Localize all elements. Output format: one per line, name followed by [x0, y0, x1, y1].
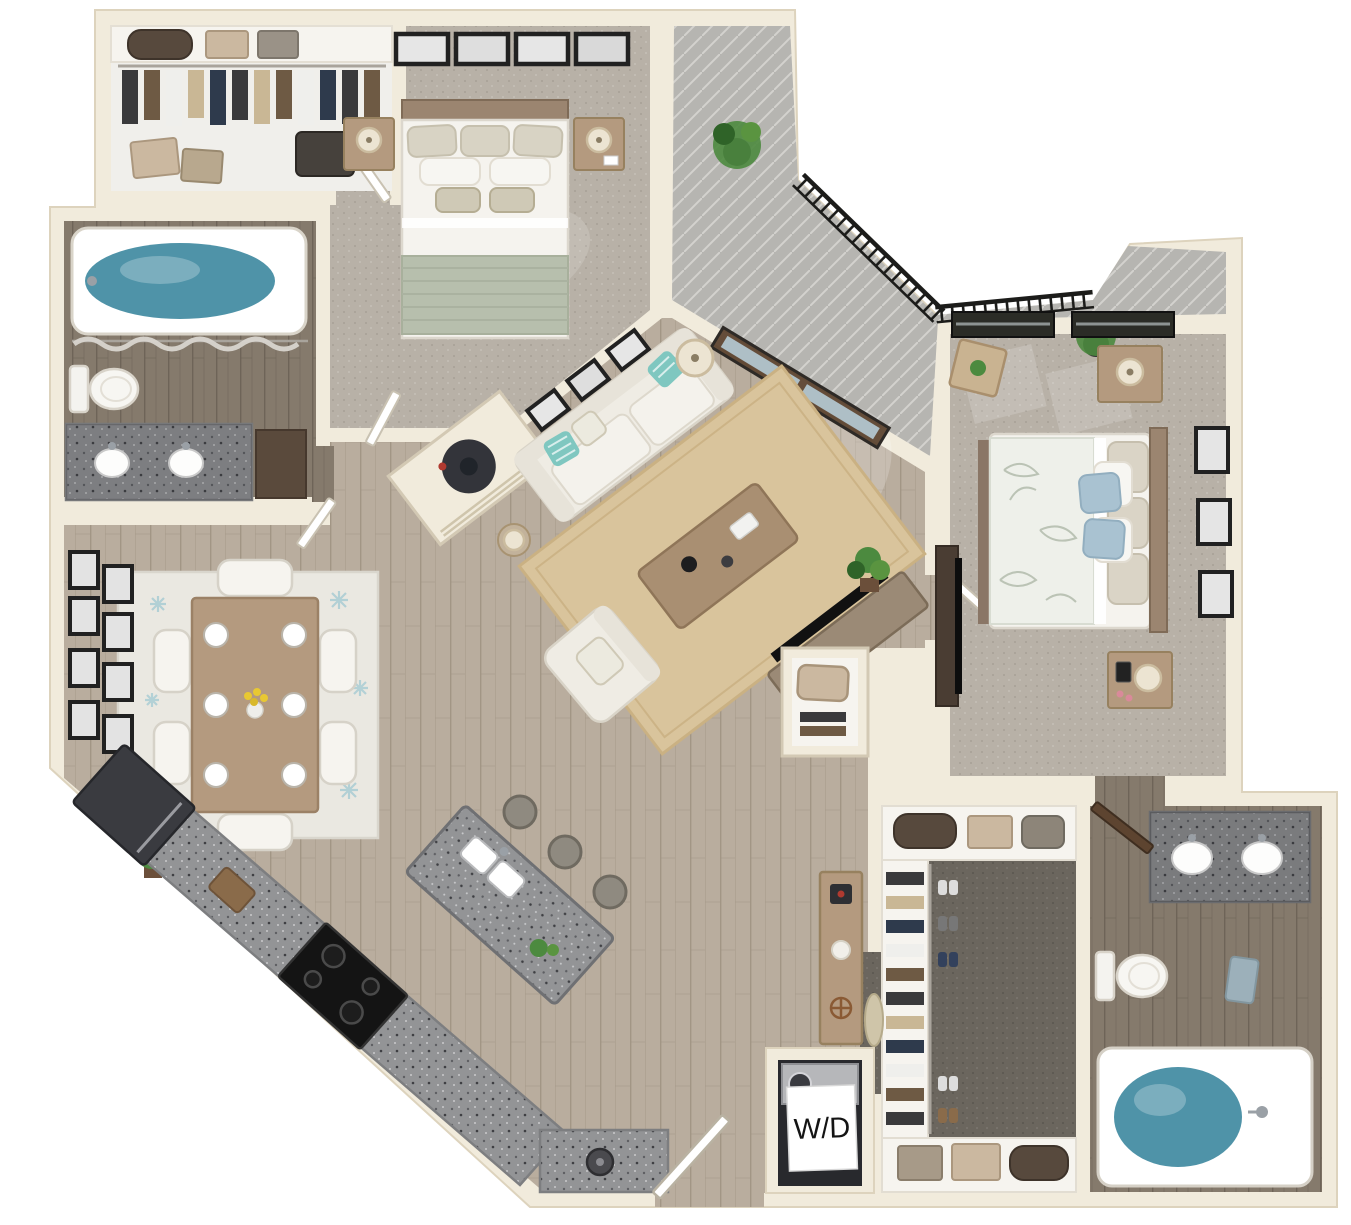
- bathroom-2-threshold: [1095, 776, 1165, 810]
- door-mat: [865, 994, 883, 1046]
- dining-chair: [320, 630, 356, 692]
- bathtub: [1098, 1048, 1312, 1186]
- gallery-frames-bedroom-2: [1196, 428, 1232, 616]
- potted-plant-balcony-nook: [713, 121, 761, 169]
- storage-box: [181, 149, 223, 184]
- storage-box: [258, 31, 298, 58]
- decor-sphere: [832, 941, 850, 959]
- floor-plan: W/D: [0, 0, 1351, 1225]
- vanity-sink: [1172, 842, 1212, 874]
- towel: [1225, 956, 1259, 1003]
- toilet: [1096, 952, 1167, 1000]
- bathtub-water-highlight: [120, 256, 200, 284]
- tablet: [1116, 662, 1131, 682]
- bed-1-sheet-fold: [402, 218, 568, 228]
- sink-faucet: [182, 442, 190, 450]
- picture-frame: [70, 552, 98, 588]
- bar-stool: [594, 876, 626, 908]
- duffel-bag: [1010, 1146, 1068, 1180]
- bed-2-footboard: [978, 440, 990, 624]
- tv: [955, 558, 962, 694]
- toilet: [70, 366, 138, 412]
- storage-box: [952, 1144, 1000, 1180]
- picture-frame: [516, 34, 568, 64]
- bed-1-blanket: [402, 256, 568, 334]
- picture-frame: [1198, 500, 1230, 544]
- wd-label: W/D: [793, 1112, 850, 1146]
- picture-frame: [70, 650, 98, 686]
- bistro-table: [949, 339, 1007, 397]
- picture-frame: [104, 566, 132, 602]
- floor-plan-canvas: W/D: [0, 0, 1351, 1225]
- table-lamp: [504, 530, 524, 550]
- vanity-sink: [1242, 842, 1282, 874]
- dining-chair: [320, 722, 356, 784]
- bar-stool: [504, 796, 536, 828]
- decor-orb: [831, 998, 851, 1018]
- tub-faucet: [87, 276, 97, 286]
- storage-box: [898, 1146, 942, 1180]
- picture-frame: [70, 702, 98, 738]
- wd-label-card: W/D: [787, 1085, 858, 1171]
- headboard: [1150, 428, 1167, 632]
- laundry-closet: W/D: [766, 1048, 874, 1193]
- storage-box: [130, 138, 180, 179]
- storage-box: [206, 31, 248, 58]
- bathtub-water: [1114, 1067, 1242, 1167]
- dining-chair: [218, 560, 292, 596]
- vanity-sink: [95, 449, 129, 477]
- picture-frame: [104, 614, 132, 650]
- picture-frame: [576, 34, 628, 64]
- bar-stool: [549, 836, 581, 868]
- nightstand-bottom: [1108, 652, 1172, 708]
- storage-bag: [1022, 816, 1064, 848]
- duffel-bag: [128, 30, 192, 59]
- suitcase: [797, 665, 849, 702]
- nightstand-left: [344, 118, 394, 170]
- picture-frame: [1200, 572, 1232, 616]
- vanity-double: [1150, 812, 1310, 902]
- console-table: [820, 872, 862, 1044]
- tv-console-bedroom-2: [936, 546, 962, 706]
- vanity-sink: [169, 449, 203, 477]
- dining-table: [192, 598, 318, 812]
- sink-faucet: [1258, 834, 1266, 842]
- picture-frame: [70, 598, 98, 634]
- entry-threshold: [655, 1192, 764, 1207]
- side-table-with-lamp: [498, 524, 530, 556]
- table-lamp: [1135, 665, 1161, 691]
- floor-lamp: [677, 340, 713, 376]
- bathroom-1-threshold: [312, 446, 334, 502]
- picture-frame: [104, 664, 132, 700]
- vanity-cabinet: [256, 430, 306, 498]
- headboard: [402, 100, 568, 120]
- sink-faucet: [108, 442, 116, 450]
- storage-box: [968, 816, 1012, 848]
- nightstand-right: [574, 118, 624, 170]
- coat-closet: [782, 648, 868, 756]
- nightstand-top: [1098, 346, 1162, 402]
- blue-pillow: [1083, 519, 1126, 560]
- duffel-bag: [894, 814, 956, 848]
- vanity: [66, 424, 252, 500]
- sink-faucet: [1188, 834, 1196, 842]
- picture-frame: [396, 34, 448, 64]
- dining-chair: [154, 630, 190, 692]
- picture-frame: [456, 34, 508, 64]
- blue-pillow: [1078, 472, 1121, 513]
- bed-2-duvet: [990, 438, 1094, 624]
- picture-frame: [1196, 428, 1228, 472]
